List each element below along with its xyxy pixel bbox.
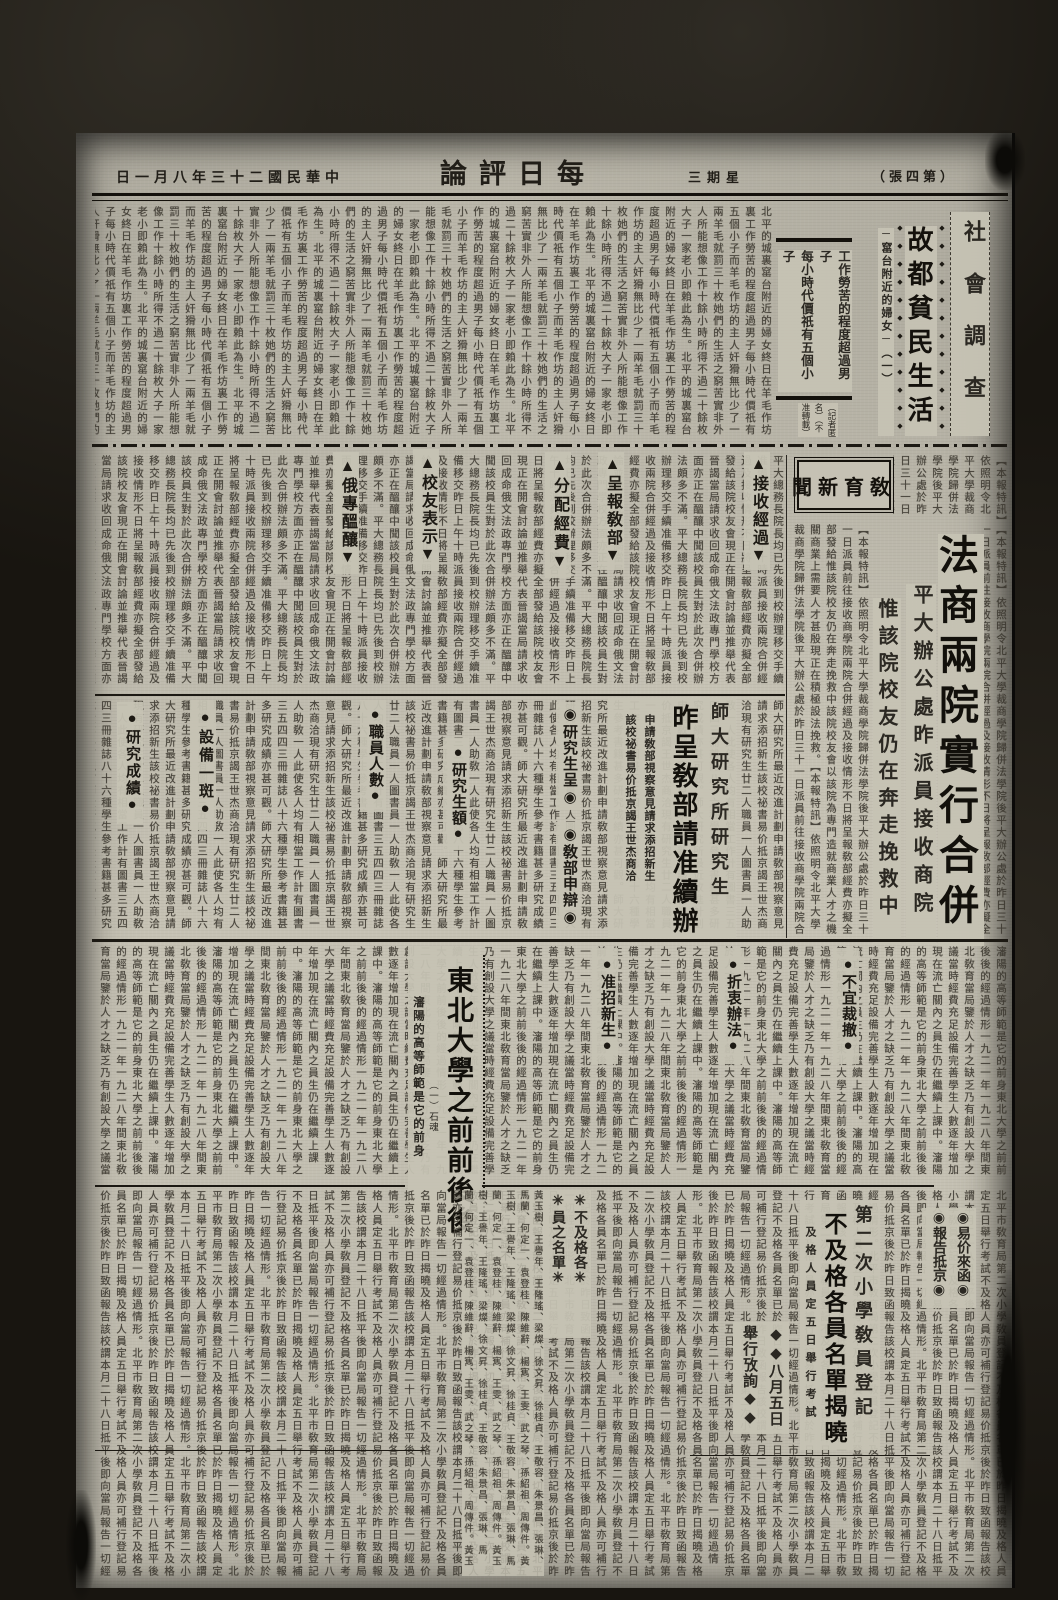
lead-subhead-2: 惟該院校友仍在奔走挽救中 — [873, 598, 901, 944]
namelist-headline-col1: ✳不及格各✳ — [567, 1193, 589, 1335]
social-deck-top-bar — [776, 238, 852, 242]
social-headline: 故都貧民生活 — [905, 226, 937, 436]
masthead-title: 論評日每 — [440, 152, 596, 191]
education-section-box: 聞新育敎 — [797, 460, 891, 510]
colhead-jieshou-jingguo: ▲接收經過▼ — [744, 452, 770, 570]
lead-vertical-rule — [786, 455, 787, 938]
shida-headline-large: 昨呈敎部請准續辦 — [660, 704, 702, 940]
header-double-rule — [92, 193, 1008, 201]
section3-rule-left — [95, 1185, 405, 1187]
teacher-headline-small: 第二次小學敎員登記 — [850, 1205, 876, 1437]
dongbei-subtitle: 瀋陽的高等師範是它的前身 — [411, 996, 426, 1186]
scan-blotch-right-edge — [990, 1270, 1026, 1570]
row1-bottom-rule — [95, 694, 785, 696]
colhead-zhiyuan-renshu: ●職員人數● — [360, 700, 386, 812]
shida-headline-small: 師大研究所研究生 — [706, 702, 732, 934]
weekday-label: 三期星 — [688, 167, 745, 186]
colhead-yanjiusheng-e: ●研究生額● — [443, 738, 469, 850]
colhead-chengbao-jiaobu: ▲呈報敎部▼ — [598, 452, 624, 570]
scan-background: 日一月八年三十二國民華中 論評日每 三期星 （張四第） 北平的城裏窰台附近的婦女… — [0, 0, 1058, 1600]
namelist-body: 黃玉樹、王譽年、王隆瑤、梁燦、徐文昇、徐桂貞、王敬容、朱景昌、張琳、馬蘭、何定一… — [462, 1190, 544, 1576]
colhead-buyi-caiche: ●不宜裁撤● — [833, 948, 859, 1064]
lead-article-intro: 【本報特訊】依照明令北平大學裁商學院歸併法學院後平大辦公處於昨日三十一日派員前往… — [790, 524, 870, 936]
shida-subhead-2: 該校祕書易价抵京謁王世杰商洽 — [622, 714, 638, 934]
education-right-body: 【本報特訊】依照明令北平大學裁商學院歸併法學院後平大辦公處於昨日三十一日派員前往… — [893, 455, 1008, 527]
social-headline-diamond-left: ◆◆◆◆◆◆◆◆◆◆◆◆ — [896, 224, 904, 436]
colhead-yanjiu-chengji: ●研究成績● — [117, 702, 143, 824]
section-divider-dashdot — [92, 444, 1008, 447]
social-byline: （記者匿名）（不准轉載） — [798, 403, 838, 437]
education-row1-body: 平大總務長院長均已先後到校辦理移交手續准備移交昨日上午十時派員接收兩院合併經過及… — [95, 455, 785, 693]
section2-bottom-rule — [92, 939, 1008, 942]
section3-rule-right — [482, 1185, 934, 1187]
colhead-xiaoyou-biaoshi: ▲校友表示▼ — [413, 449, 439, 571]
dateline: 日一月八年三十二國民華中 — [116, 167, 344, 187]
lead-article-rightcol: 【本報特訊】依照明令北平大學裁商學院歸併法學院後平大辦公處於昨日三十一日派員前往… — [984, 524, 1008, 936]
social-section-title: 社會調查 — [950, 212, 990, 436]
social-deck-bottom-bar — [776, 396, 852, 400]
dongbei-byline: （一）石魂 — [426, 1080, 439, 1155]
colhead-yanjiusheng-cheng: ◉研究生呈◉ — [556, 702, 580, 810]
edition-label: （張四第） — [872, 166, 957, 185]
colhead-fenpei-jingfei: ▲分配經費▼ — [545, 452, 571, 578]
teacher-subhead: 及格人員定五日舉行考試 — [802, 1226, 818, 1440]
colhead-jiaobu-shenbian: ◉敎部申辯◉ — [556, 822, 580, 930]
education-section-title: 聞新育敎 — [792, 471, 896, 500]
social-headline-diamond-right: ◆◆◆◆◆◆◆◆◆◆◆◆ — [938, 224, 946, 436]
scan-blotch-top-right — [985, 130, 1025, 190]
colhead-zhunzhao-xinsheng: ●准招新生● — [592, 948, 618, 1064]
teacher-headline-large: 不及格各員名單揭曉 — [818, 1212, 850, 1454]
lead-headline: 法商兩院實行合併 — [938, 534, 984, 946]
social-deck: 工作勞苦的程度超過男子 每小時代價祇有五個小子 羊毛作坊的主人奸猾無比 少了一兩… — [778, 250, 852, 392]
bottom-partial-rule-left — [95, 1450, 425, 1451]
social-article-body: 北平的城裏窰台附近的婦女終日在羊毛作坊裏工作勞苦的程度超過男子每小時代價祇有五個… — [95, 206, 773, 437]
scan-blotch-bottom-left — [66, 1490, 96, 1600]
exam-headline-col1: ◆◆八月五日 — [762, 1325, 786, 1431]
namelist-headline-col2: ✳員之名單✳ — [545, 1193, 567, 1335]
colhead-ezhuan-yunniang: ▲俄專醞釀▼ — [333, 452, 359, 574]
social-headline-subtitle: ─窰台附近的婦女─（一） — [878, 228, 894, 436]
yijia-headline-col2: ◉報告抵京◉ — [926, 1210, 948, 1306]
dongbei-article-body: 瀋陽的高等師範是它的前身東北大學之前前後後的經過情形一九二一年一九二八年間東北敎… — [95, 946, 1008, 1182]
exam-headline-col2: 舉行攷詢◆◆ — [736, 1325, 760, 1431]
colhead-shebei-yiban: ●設備一斑● — [190, 700, 216, 830]
lead-subhead-1: 平大辦公處昨派員接收商院 — [906, 584, 936, 944]
shida-subhead-1: 申請敎部視察意見請求添招新生 — [641, 714, 657, 934]
colhead-zhezhong-banfa: ●折衷辦法● — [718, 948, 744, 1064]
yijia-headline-col1: ◉易价來函◉ — [950, 1210, 972, 1306]
bottom-partial-rule-right — [690, 1455, 930, 1456]
